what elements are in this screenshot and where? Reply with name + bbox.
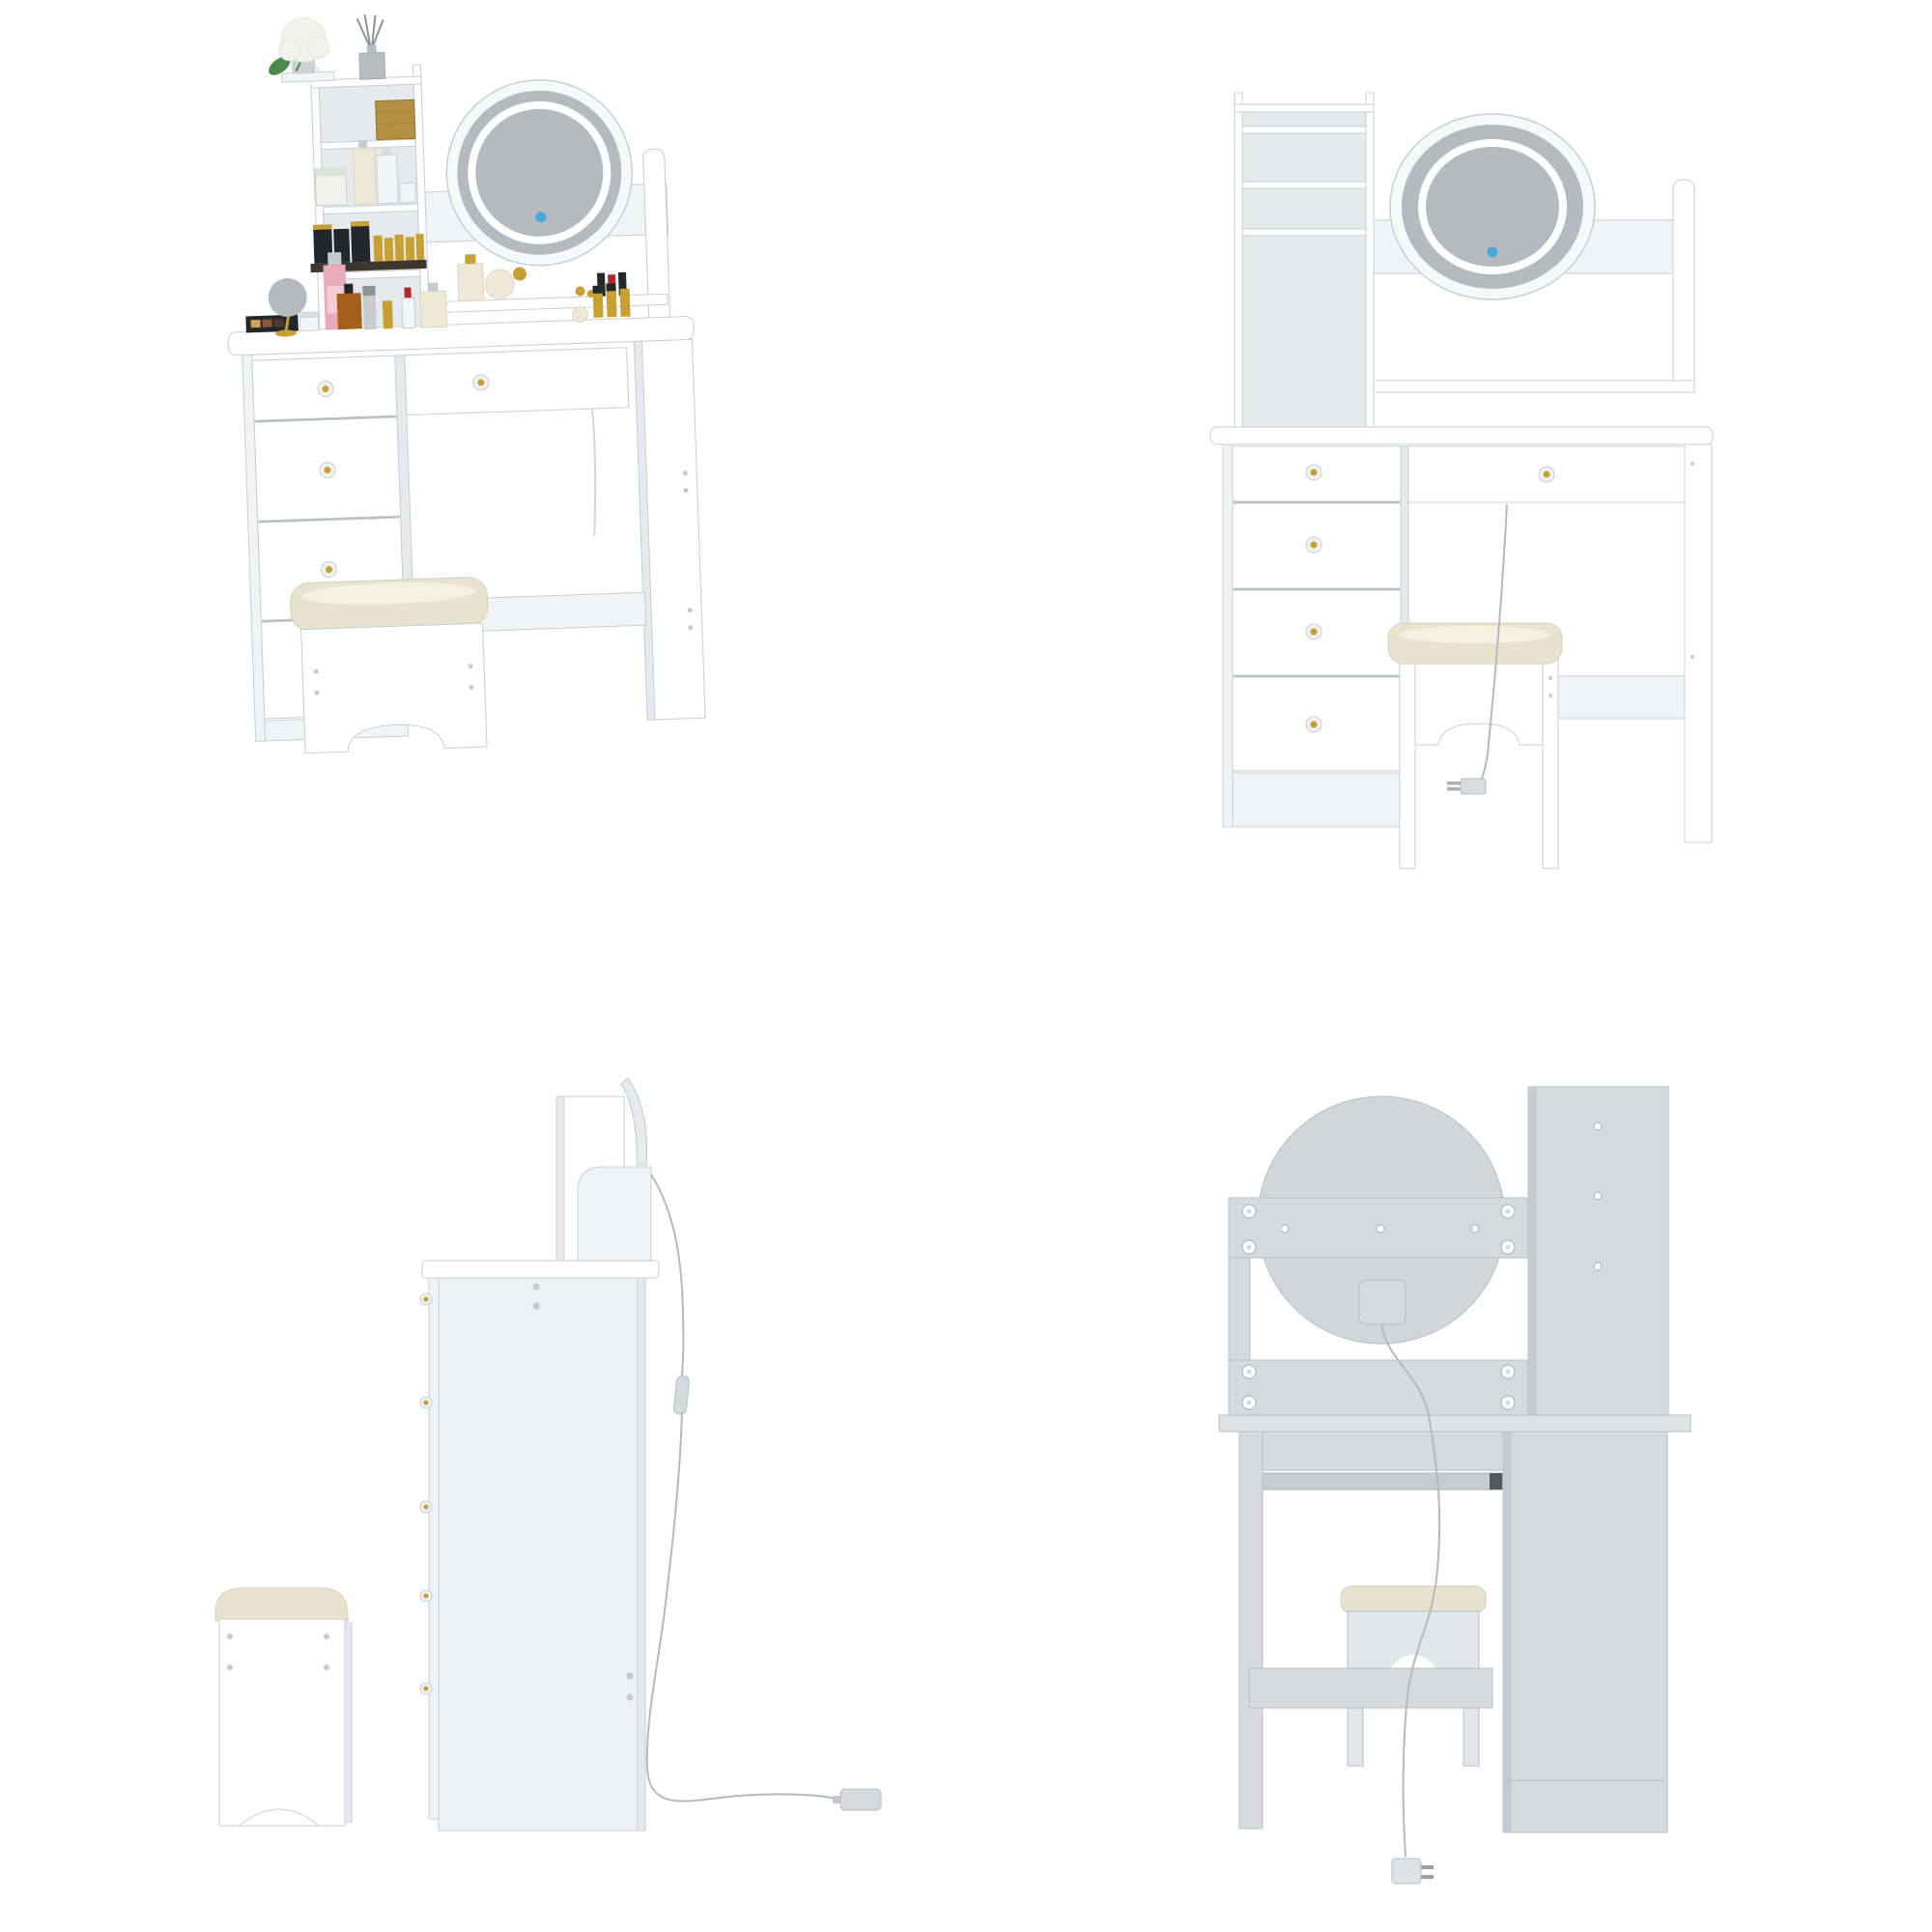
tabletop-side — [422, 1261, 659, 1278]
power-plug — [833, 1789, 881, 1810]
tabletop-back-edge — [1219, 1415, 1690, 1432]
stool-apron — [1415, 660, 1543, 745]
hutch-back-panel — [1528, 1087, 1668, 1415]
cam-screw — [1242, 1396, 1256, 1409]
view-back — [1219, 1087, 1690, 1884]
cam-screw — [1501, 1396, 1515, 1409]
stool-leg — [1543, 660, 1558, 868]
shelf-tower — [1235, 93, 1374, 427]
drawer-knob — [420, 1501, 432, 1513]
view-front-styled — [217, 4, 708, 755]
power-plug — [1447, 779, 1486, 794]
lower-mounting-rail — [1229, 1360, 1528, 1415]
cabinet-base — [1233, 773, 1401, 827]
decor-flower — [264, 16, 334, 82]
power-plug — [1392, 1859, 1434, 1884]
drawer-knob — [473, 375, 490, 391]
support-post-back — [1229, 1258, 1250, 1360]
screw — [1281, 1225, 1289, 1233]
drawer-knob — [321, 561, 337, 578]
drawer-knob — [318, 381, 334, 397]
drawer-knob — [320, 462, 336, 478]
screw — [1377, 1225, 1384, 1233]
stool — [1388, 623, 1562, 868]
desk-side — [420, 1261, 659, 1831]
decor-makeup-palette — [245, 315, 298, 333]
upper-mounting-rail — [1229, 1198, 1528, 1258]
cam-screw — [1242, 1205, 1256, 1218]
vanity-product-views-canvas — [0, 0, 1932, 1932]
stool-cushion — [1341, 1586, 1486, 1613]
decor-reed-diffuser — [357, 14, 385, 79]
mirror-edge-arc — [621, 1078, 647, 1165]
center-drawer — [1408, 446, 1685, 502]
drawer-knob — [1539, 467, 1554, 482]
view-side — [215, 1078, 881, 1831]
product-image-grid — [0, 0, 1932, 1932]
hutch-side — [556, 1078, 651, 1263]
screw — [1594, 1192, 1602, 1200]
cam-screw — [1501, 1365, 1515, 1378]
drawer-knob — [420, 1293, 432, 1305]
desk-side-panel — [439, 1278, 645, 1831]
desk-back-rail — [1239, 1432, 1504, 1470]
cam-screw — [1501, 1205, 1515, 1218]
stool-leg — [1400, 660, 1415, 868]
drawer-cabinet — [1223, 444, 1401, 827]
drawer-knob — [420, 1397, 432, 1408]
mirror-touch-button — [1488, 247, 1498, 258]
stool-cushion — [215, 1588, 348, 1621]
screw — [1594, 1122, 1602, 1130]
inline-switch — [673, 1375, 690, 1414]
drawer-knob — [420, 1590, 432, 1602]
screw — [1594, 1263, 1602, 1270]
power-cord — [647, 1412, 838, 1802]
cam-screw — [1501, 1240, 1515, 1254]
stool-side — [215, 1588, 352, 1826]
power-cord — [590, 409, 598, 536]
led-driver-box — [1359, 1280, 1406, 1324]
stretcher-back — [1249, 1668, 1492, 1708]
right-leg-panel — [1685, 444, 1712, 842]
mirror-support-side — [578, 1167, 651, 1261]
decor-gift-box — [376, 99, 415, 139]
cabinet-back-panel — [1503, 1432, 1667, 1833]
tabletop — [1210, 427, 1713, 444]
screw — [1471, 1225, 1479, 1233]
stool-body — [219, 1619, 345, 1826]
drawer-slide-rail — [1241, 1473, 1502, 1490]
cam-screw — [1242, 1240, 1256, 1254]
drawer-knob — [420, 1683, 432, 1694]
right-leg-panel — [634, 339, 705, 720]
left-leg-back — [1239, 1432, 1263, 1829]
led-mirror — [1390, 114, 1595, 299]
drawer-knob — [1306, 465, 1321, 480]
display-shelf — [1374, 381, 1694, 392]
center-drawer — [405, 348, 629, 415]
drawer-knob — [1306, 624, 1321, 639]
view-front-plain — [1210, 93, 1713, 868]
cam-screw — [1242, 1365, 1256, 1378]
drawer-knob — [1306, 537, 1321, 553]
drawer-knob — [1306, 717, 1321, 732]
mirror-support-post — [1673, 180, 1694, 384]
